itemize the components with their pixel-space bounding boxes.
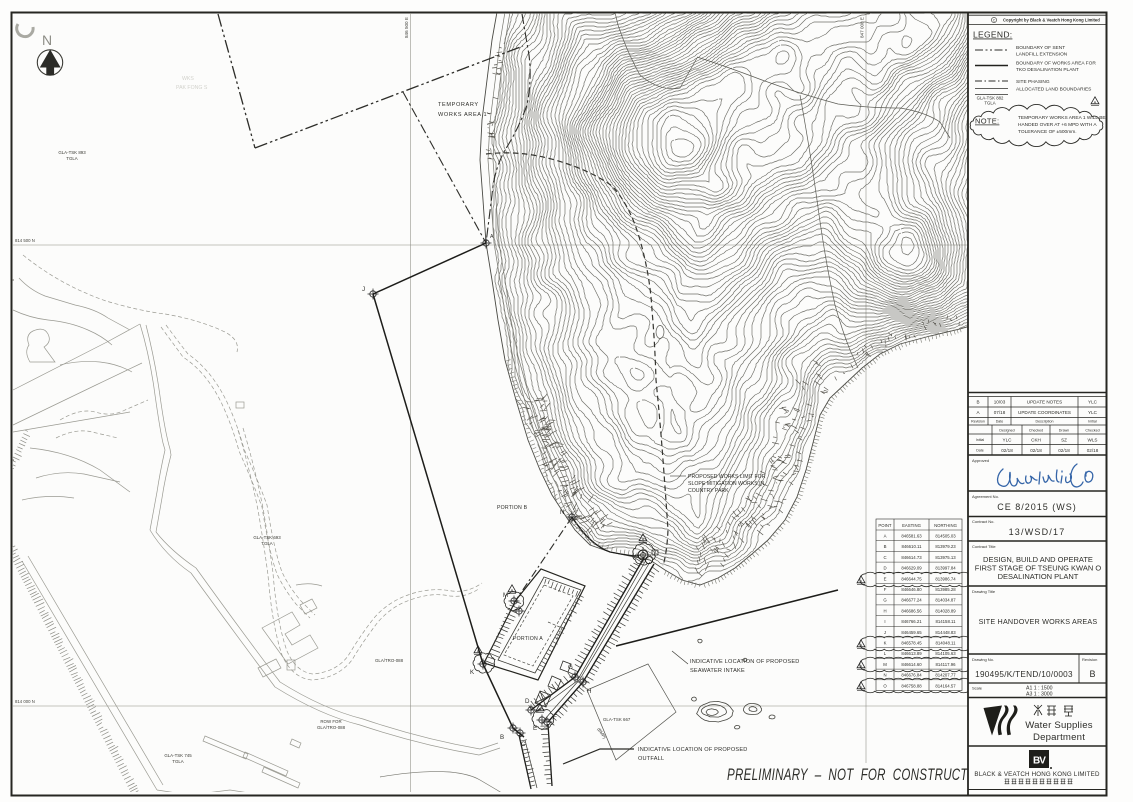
- svg-text:TOLERANCE OF ±500mm.: TOLERANCE OF ±500mm.: [1018, 129, 1077, 135]
- svg-text:ROW FOR: ROW FOR: [320, 719, 341, 724]
- svg-text:I: I: [884, 619, 885, 624]
- svg-text:BOUNDARY OF WORKS AREA FOR: BOUNDARY OF WORKS AREA FOR: [1016, 61, 1096, 67]
- svg-text:02/18: 02/18: [1087, 448, 1099, 453]
- svg-text:J: J: [362, 286, 365, 293]
- svg-text:C: C: [993, 18, 996, 22]
- svg-text:GLA-TSK 745: GLA-TSK 745: [164, 753, 192, 758]
- svg-text:02/18: 02/18: [1058, 448, 1070, 453]
- svg-text:Date: Date: [976, 449, 984, 453]
- svg-text:846578.45: 846578.45: [901, 641, 922, 646]
- svg-text:13/WSD/17: 13/WSD/17: [1009, 527, 1066, 537]
- svg-text:EASTING: EASTING: [902, 523, 922, 528]
- svg-text:Drawing Title: Drawing Title: [972, 589, 996, 594]
- svg-text:814207.77: 814207.77: [935, 673, 956, 678]
- svg-text:814448.83: 814448.83: [935, 630, 956, 635]
- svg-text:Revision: Revision: [971, 419, 985, 423]
- svg-text:Contract No.: Contract No.: [972, 519, 994, 524]
- svg-text:INDICATIVE LOCATION OF PROPOSE: INDICATIVE LOCATION OF PROPOSED: [690, 659, 800, 665]
- svg-text:C: C: [883, 555, 886, 560]
- svg-text:NOTE:: NOTE:: [975, 117, 999, 126]
- svg-text:Approved: Approved: [972, 458, 989, 463]
- svg-text:D: D: [883, 566, 886, 571]
- svg-text:E: E: [884, 576, 887, 581]
- svg-text:UPDATE COORDINATES: UPDATE COORDINATES: [1018, 410, 1071, 415]
- svg-text:A3 1 : 3000: A3 1 : 3000: [1026, 692, 1053, 698]
- svg-text:846614.60: 846614.60: [901, 662, 922, 667]
- svg-text:814048.11: 814048.11: [936, 641, 957, 646]
- svg-text:YLC: YLC: [1088, 410, 1098, 415]
- svg-text:C: C: [521, 741, 526, 748]
- svg-text:814028.89: 814028.89: [935, 608, 956, 613]
- svg-text:Contract Title: Contract Title: [972, 544, 996, 549]
- svg-text:846644.75: 846644.75: [901, 576, 922, 581]
- svg-text:H: H: [883, 608, 886, 613]
- svg-text:A: A: [884, 534, 887, 539]
- svg-text:N: N: [883, 673, 886, 678]
- svg-text:CKH: CKH: [1031, 438, 1041, 443]
- svg-text:846614.73: 846614.73: [901, 555, 922, 560]
- svg-text:Department: Department: [1033, 732, 1085, 743]
- svg-text:TGLA: TGLA: [172, 759, 184, 764]
- svg-text:PORTION B: PORTION B: [497, 505, 528, 511]
- svg-text:TKO DESALINATION PLANT: TKO DESALINATION PLANT: [1016, 67, 1079, 73]
- svg-text:BV: BV: [1033, 756, 1046, 767]
- svg-text:GLA-TSK 893: GLA-TSK 893: [58, 150, 86, 155]
- svg-text:846610.11: 846610.11: [902, 544, 923, 549]
- svg-text:H: H: [587, 688, 591, 695]
- svg-text:813975.13: 813975.13: [935, 555, 956, 560]
- svg-text:GLA-TSK 693: GLA-TSK 693: [253, 535, 281, 540]
- svg-text:846629.09: 846629.09: [901, 566, 922, 571]
- svg-text:WLS: WLS: [1088, 438, 1098, 443]
- svg-text:M: M: [503, 592, 508, 599]
- svg-text:B: B: [1089, 669, 1095, 679]
- svg-text:M: M: [883, 662, 887, 667]
- svg-text:SITE HANDOVER WORKS AREAS: SITE HANDOVER WORKS AREAS: [979, 617, 1098, 626]
- svg-text:SITE PHASING: SITE PHASING: [1016, 79, 1050, 85]
- svg-text:846581.63: 846581.63: [901, 534, 922, 539]
- svg-text:BLACK & VEATCH HONG KONG LIMIT: BLACK & VEATCH HONG KONG LIMITED: [974, 771, 1100, 778]
- svg-text:K: K: [884, 641, 887, 646]
- svg-text:PROPOSED WORKS LIMIT FOR: PROPOSED WORKS LIMIT FOR: [688, 474, 766, 480]
- svg-text:B: B: [884, 544, 887, 549]
- svg-text:TGLA: TGLA: [261, 541, 273, 546]
- svg-text:PRELIMINARY – NOT FOR CONSTRUC: PRELIMINARY – NOT FOR CONSTRUCTION: [727, 766, 989, 785]
- svg-text:Initial: Initial: [1088, 419, 1097, 423]
- svg-text:ALLOCATED LAND BOUNDARIES: ALLOCATED LAND BOUNDARIES: [1016, 87, 1091, 93]
- svg-text:INDICATIVE LOCATION OF PROPOSE: INDICATIVE LOCATION OF PROPOSED: [638, 747, 748, 753]
- svg-text:POINT: POINT: [878, 523, 892, 528]
- svg-text:813997.84: 813997.84: [935, 566, 956, 571]
- svg-text:846 500 E: 846 500 E: [404, 17, 409, 38]
- svg-text:F: F: [884, 587, 887, 592]
- svg-text:B: B: [976, 400, 979, 405]
- svg-text:DESALINATION PLANT: DESALINATION PLANT: [998, 572, 1079, 581]
- svg-text:HANDED OVER AT +6 MPD WITH A: HANDED OVER AT +6 MPD WITH A: [1018, 122, 1097, 128]
- svg-text:J: J: [884, 630, 886, 635]
- svg-text:02/18: 02/18: [1030, 448, 1042, 453]
- svg-text:G: G: [568, 664, 573, 671]
- svg-text:PORTION A: PORTION A: [513, 636, 543, 642]
- svg-text:Drawing No.: Drawing No.: [972, 657, 994, 662]
- svg-text:846686.56: 846686.56: [901, 608, 922, 613]
- svg-text:CE 8/2015 (WS): CE 8/2015 (WS): [997, 502, 1077, 512]
- svg-text:Copyright by Black & Veatch Ho: Copyright by Black & Veatch Hong Kong Li…: [1003, 18, 1100, 23]
- svg-text:COUNTRY PARK: COUNTRY PARK: [688, 488, 729, 494]
- svg-text:SZ: SZ: [1061, 438, 1067, 443]
- svg-text:GLA/TRO-088: GLA/TRO-088: [317, 725, 346, 730]
- svg-text:Drawn: Drawn: [1059, 428, 1069, 432]
- svg-text:846758.88: 846758.88: [901, 683, 922, 688]
- svg-text:10/03: 10/03: [994, 400, 1006, 405]
- svg-text:07/18: 07/18: [994, 410, 1006, 415]
- svg-text:BOUNDARY OF SENT: BOUNDARY OF SENT: [1016, 45, 1065, 51]
- svg-text:190495/K/TEND/10/0003: 190495/K/TEND/10/0003: [975, 670, 1073, 679]
- svg-text:846766.21: 846766.21: [901, 619, 922, 624]
- svg-text:Revision: Revision: [1082, 657, 1097, 662]
- svg-text:814034.87: 814034.87: [935, 598, 956, 603]
- svg-text:SEAWATER INTAKE: SEAWATER INTAKE: [690, 668, 745, 674]
- svg-text:Date: Date: [996, 419, 1004, 423]
- svg-text:GLA/TRO-088: GLA/TRO-088: [375, 658, 404, 663]
- svg-text:Checked: Checked: [1085, 428, 1099, 432]
- svg-text:WORKS AREA 1: WORKS AREA 1: [438, 112, 487, 118]
- svg-text:TEMPORARY WORKS AREA 1 WILL BE: TEMPORARY WORKS AREA 1 WILL BE: [1018, 115, 1106, 121]
- svg-text:846459.65: 846459.65: [901, 630, 922, 635]
- svg-text:OUTFALL: OUTFALL: [638, 756, 664, 762]
- svg-text:TGLA: TGLA: [984, 101, 995, 106]
- svg-text:Description: Description: [1036, 419, 1054, 423]
- svg-text:F: F: [553, 714, 557, 721]
- svg-text:LANDFILL EXTENSION: LANDFILL EXTENSION: [1016, 52, 1068, 58]
- svg-text:TEMPORARY: TEMPORARY: [438, 102, 479, 108]
- svg-text:846646.80: 846646.80: [901, 587, 922, 592]
- svg-text:YLC: YLC: [1088, 400, 1098, 405]
- svg-text:A: A: [490, 234, 494, 240]
- svg-text:813985.28: 813985.28: [935, 587, 956, 592]
- svg-text:NORTHING: NORTHING: [934, 523, 957, 528]
- svg-text:846613.89: 846613.89: [901, 651, 922, 656]
- svg-text:814105.63: 814105.63: [935, 651, 956, 656]
- svg-text:D: D: [525, 698, 530, 705]
- svg-text:814 500 N: 814 500 N: [15, 238, 35, 243]
- svg-text:LEGEND:: LEGEND:: [973, 30, 1012, 40]
- svg-text:WKS: WKS: [182, 76, 194, 82]
- svg-text:814117.96: 814117.96: [936, 662, 957, 667]
- svg-text:N: N: [560, 509, 564, 516]
- svg-text:Agreement No.: Agreement No.: [972, 494, 999, 499]
- svg-text:Designed: Designed: [999, 428, 1014, 432]
- svg-text:SLOPE MITIGATION WORKS IN: SLOPE MITIGATION WORKS IN: [688, 481, 765, 487]
- svg-text:814 000 N: 814 000 N: [15, 699, 35, 704]
- svg-text:813986.74: 813986.74: [935, 576, 956, 581]
- svg-text:846677.24: 846677.24: [901, 598, 922, 603]
- svg-text:814505.03: 814505.03: [935, 534, 956, 539]
- svg-text:Scale: Scale: [972, 686, 983, 691]
- svg-text:PAK FONG S: PAK FONG S: [176, 85, 208, 91]
- svg-text:847 000 E: 847 000 E: [860, 17, 865, 38]
- svg-text:Initial: Initial: [976, 438, 985, 442]
- svg-text:N: N: [42, 32, 52, 48]
- svg-text:814164.57: 814164.57: [935, 683, 956, 688]
- svg-text:YLC: YLC: [1003, 438, 1013, 443]
- svg-text:814158.11: 814158.11: [936, 619, 957, 624]
- svg-text:813979.23: 813979.23: [935, 544, 956, 549]
- svg-text:TGLA: TGLA: [66, 156, 78, 161]
- svg-text:02/18: 02/18: [1001, 448, 1013, 453]
- svg-text:E: E: [533, 725, 537, 732]
- svg-text:GLA-TSK 667: GLA-TSK 667: [603, 717, 631, 722]
- svg-text:Water Supplies: Water Supplies: [1025, 720, 1093, 731]
- svg-text:Checked: Checked: [1029, 428, 1043, 432]
- svg-text:846676.84: 846676.84: [901, 673, 922, 678]
- svg-text:B: B: [500, 734, 504, 741]
- svg-text:UPDATE NOTES: UPDATE NOTES: [1027, 400, 1062, 405]
